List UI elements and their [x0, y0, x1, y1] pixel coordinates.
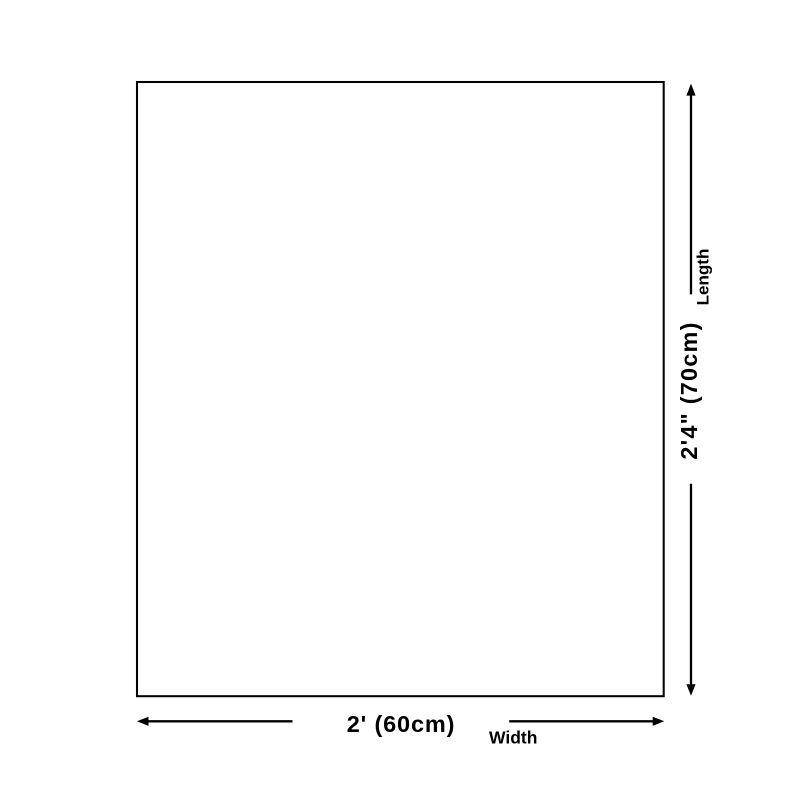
svg-text:Length: Length	[693, 249, 712, 306]
svg-text:2'4" (70cm): 2'4" (70cm)	[676, 321, 702, 459]
svg-text:Width: Width	[489, 728, 537, 748]
svg-text:2' (60cm): 2' (60cm)	[347, 711, 456, 737]
